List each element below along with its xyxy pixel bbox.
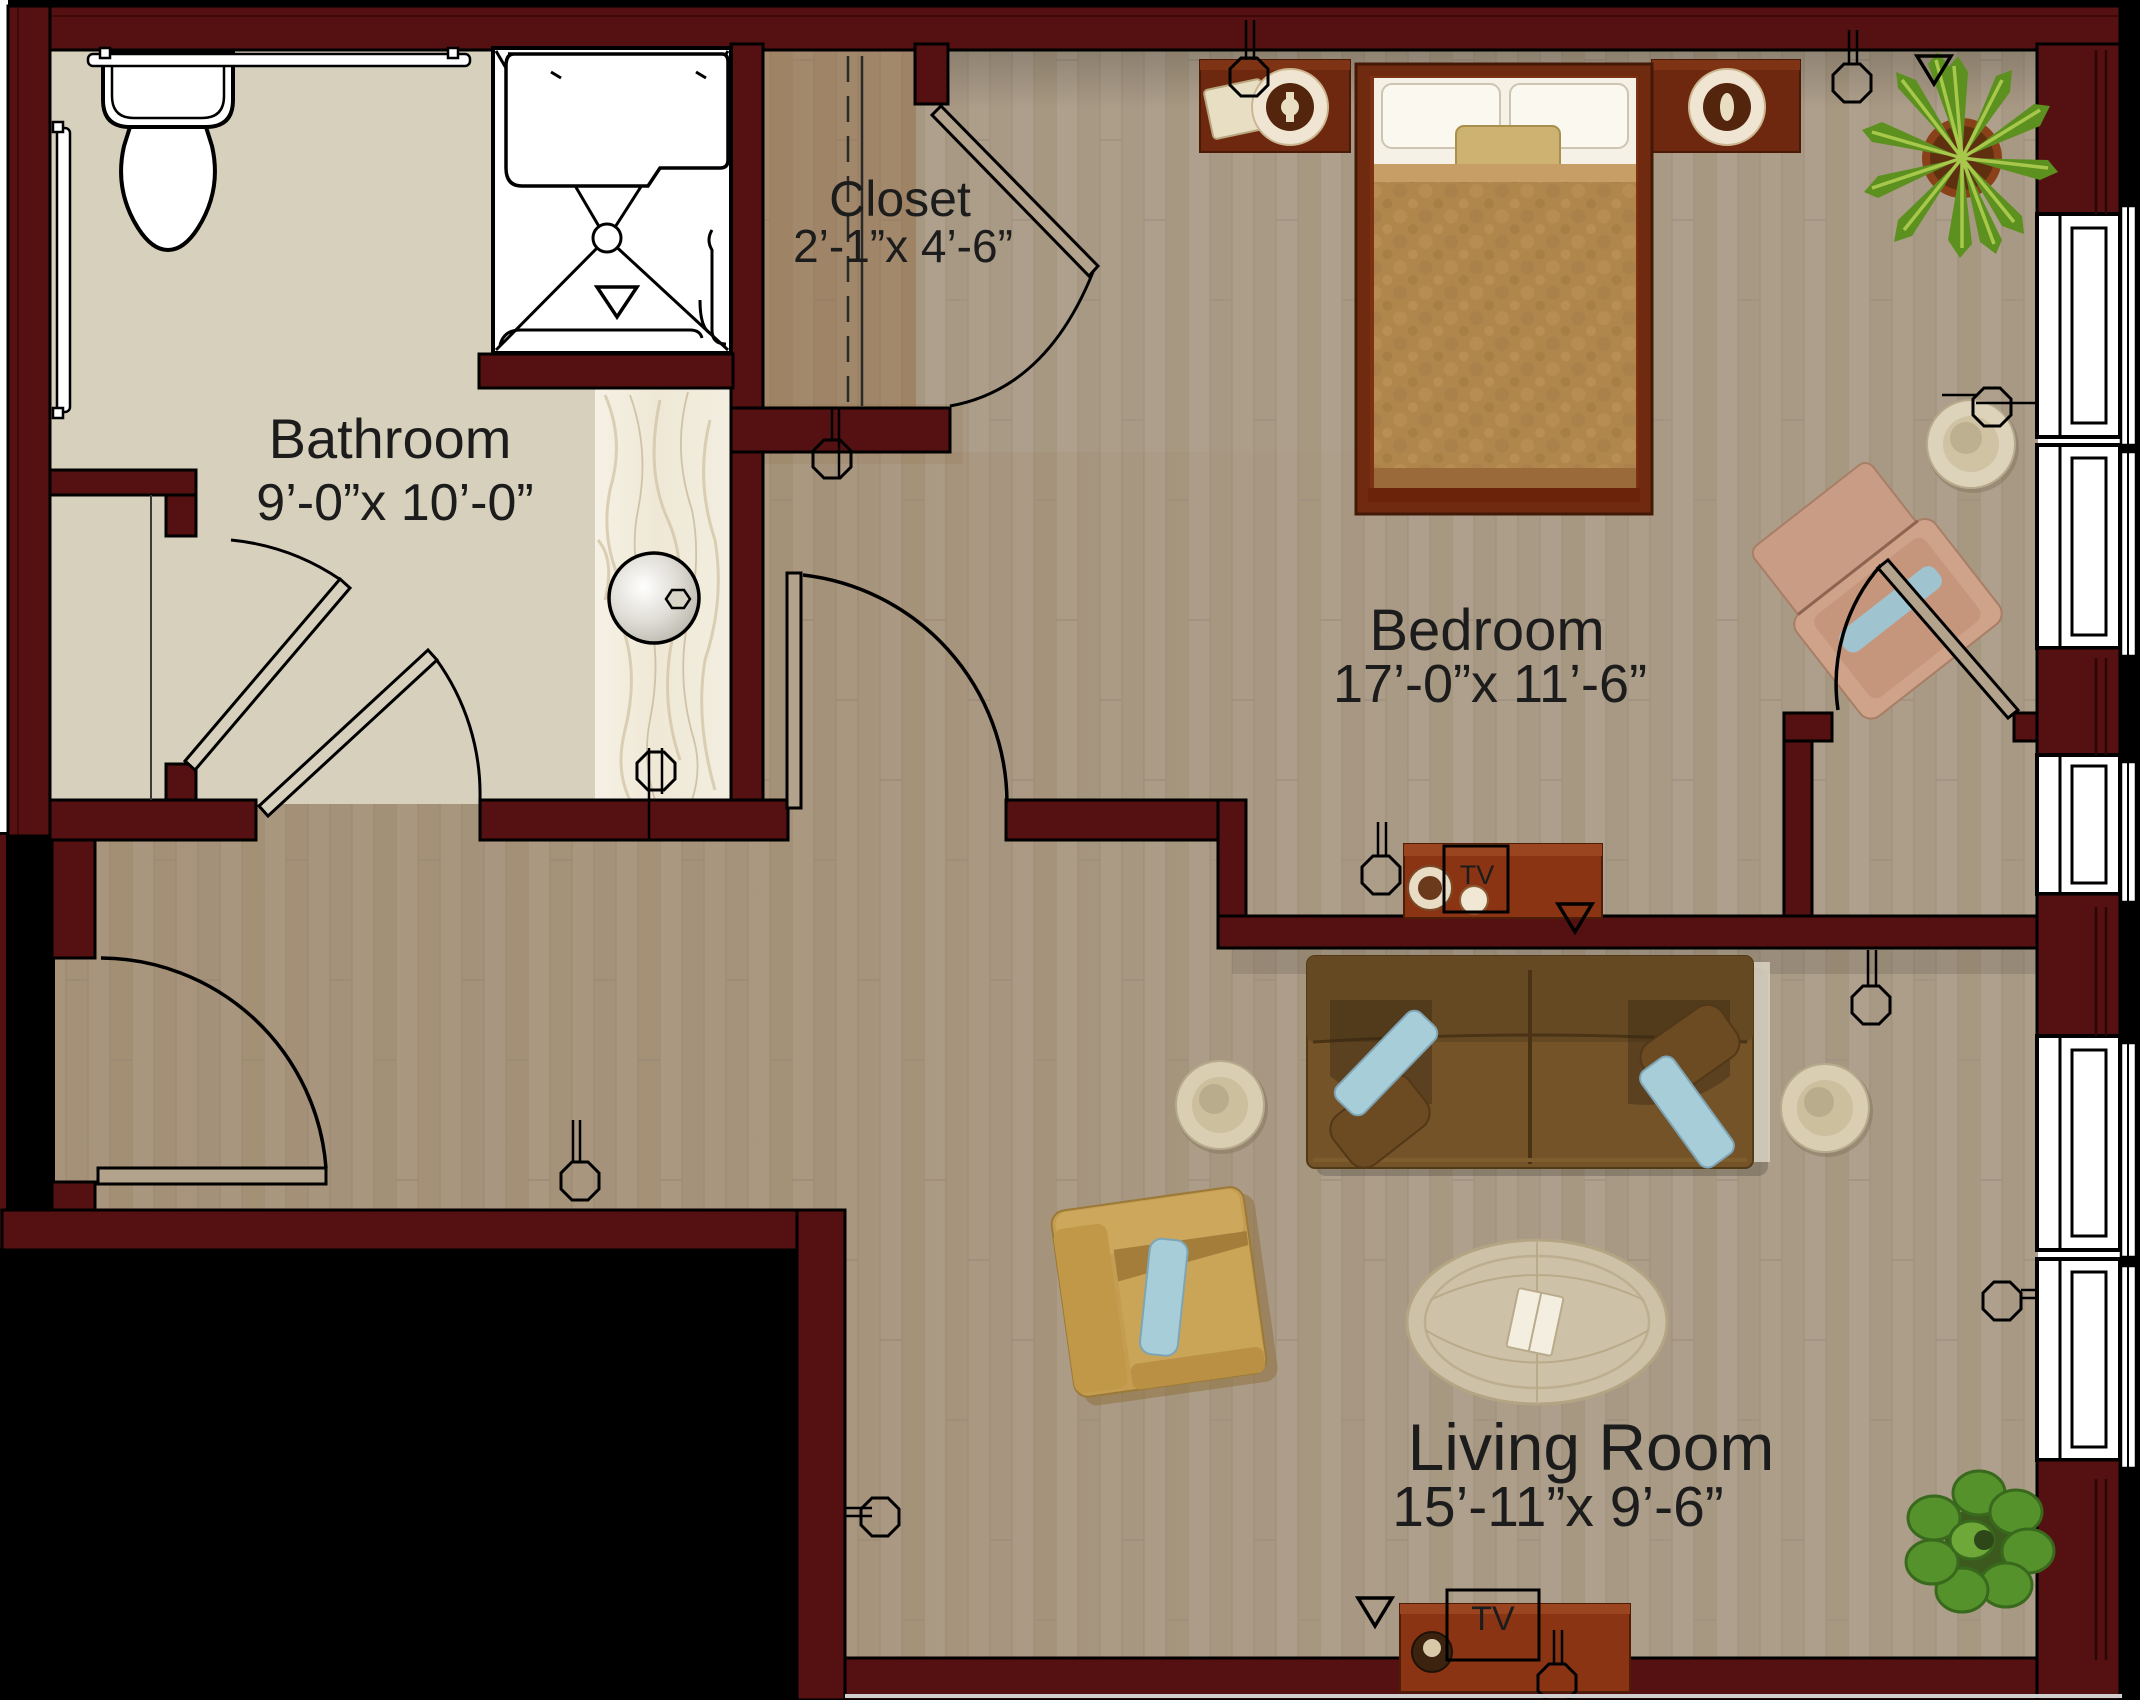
svg-text:TV: TV: [1471, 1600, 1515, 1638]
svg-text:Living Room: Living Room: [1408, 1410, 1775, 1484]
svg-text:9’-0”x 10’-0”: 9’-0”x 10’-0”: [256, 474, 533, 532]
svg-text:17’-0”x 11’-6”: 17’-0”x 11’-6”: [1333, 654, 1647, 714]
svg-text:15’-11”x 9’-6”: 15’-11”x 9’-6”: [1392, 1475, 1724, 1539]
svg-text:2’-1”x 4’-6”: 2’-1”x 4’-6”: [793, 220, 1013, 272]
svg-text:Bathroom: Bathroom: [269, 407, 512, 470]
svg-text:TV: TV: [1460, 860, 1495, 890]
svg-text:Closet: Closet: [829, 171, 971, 227]
